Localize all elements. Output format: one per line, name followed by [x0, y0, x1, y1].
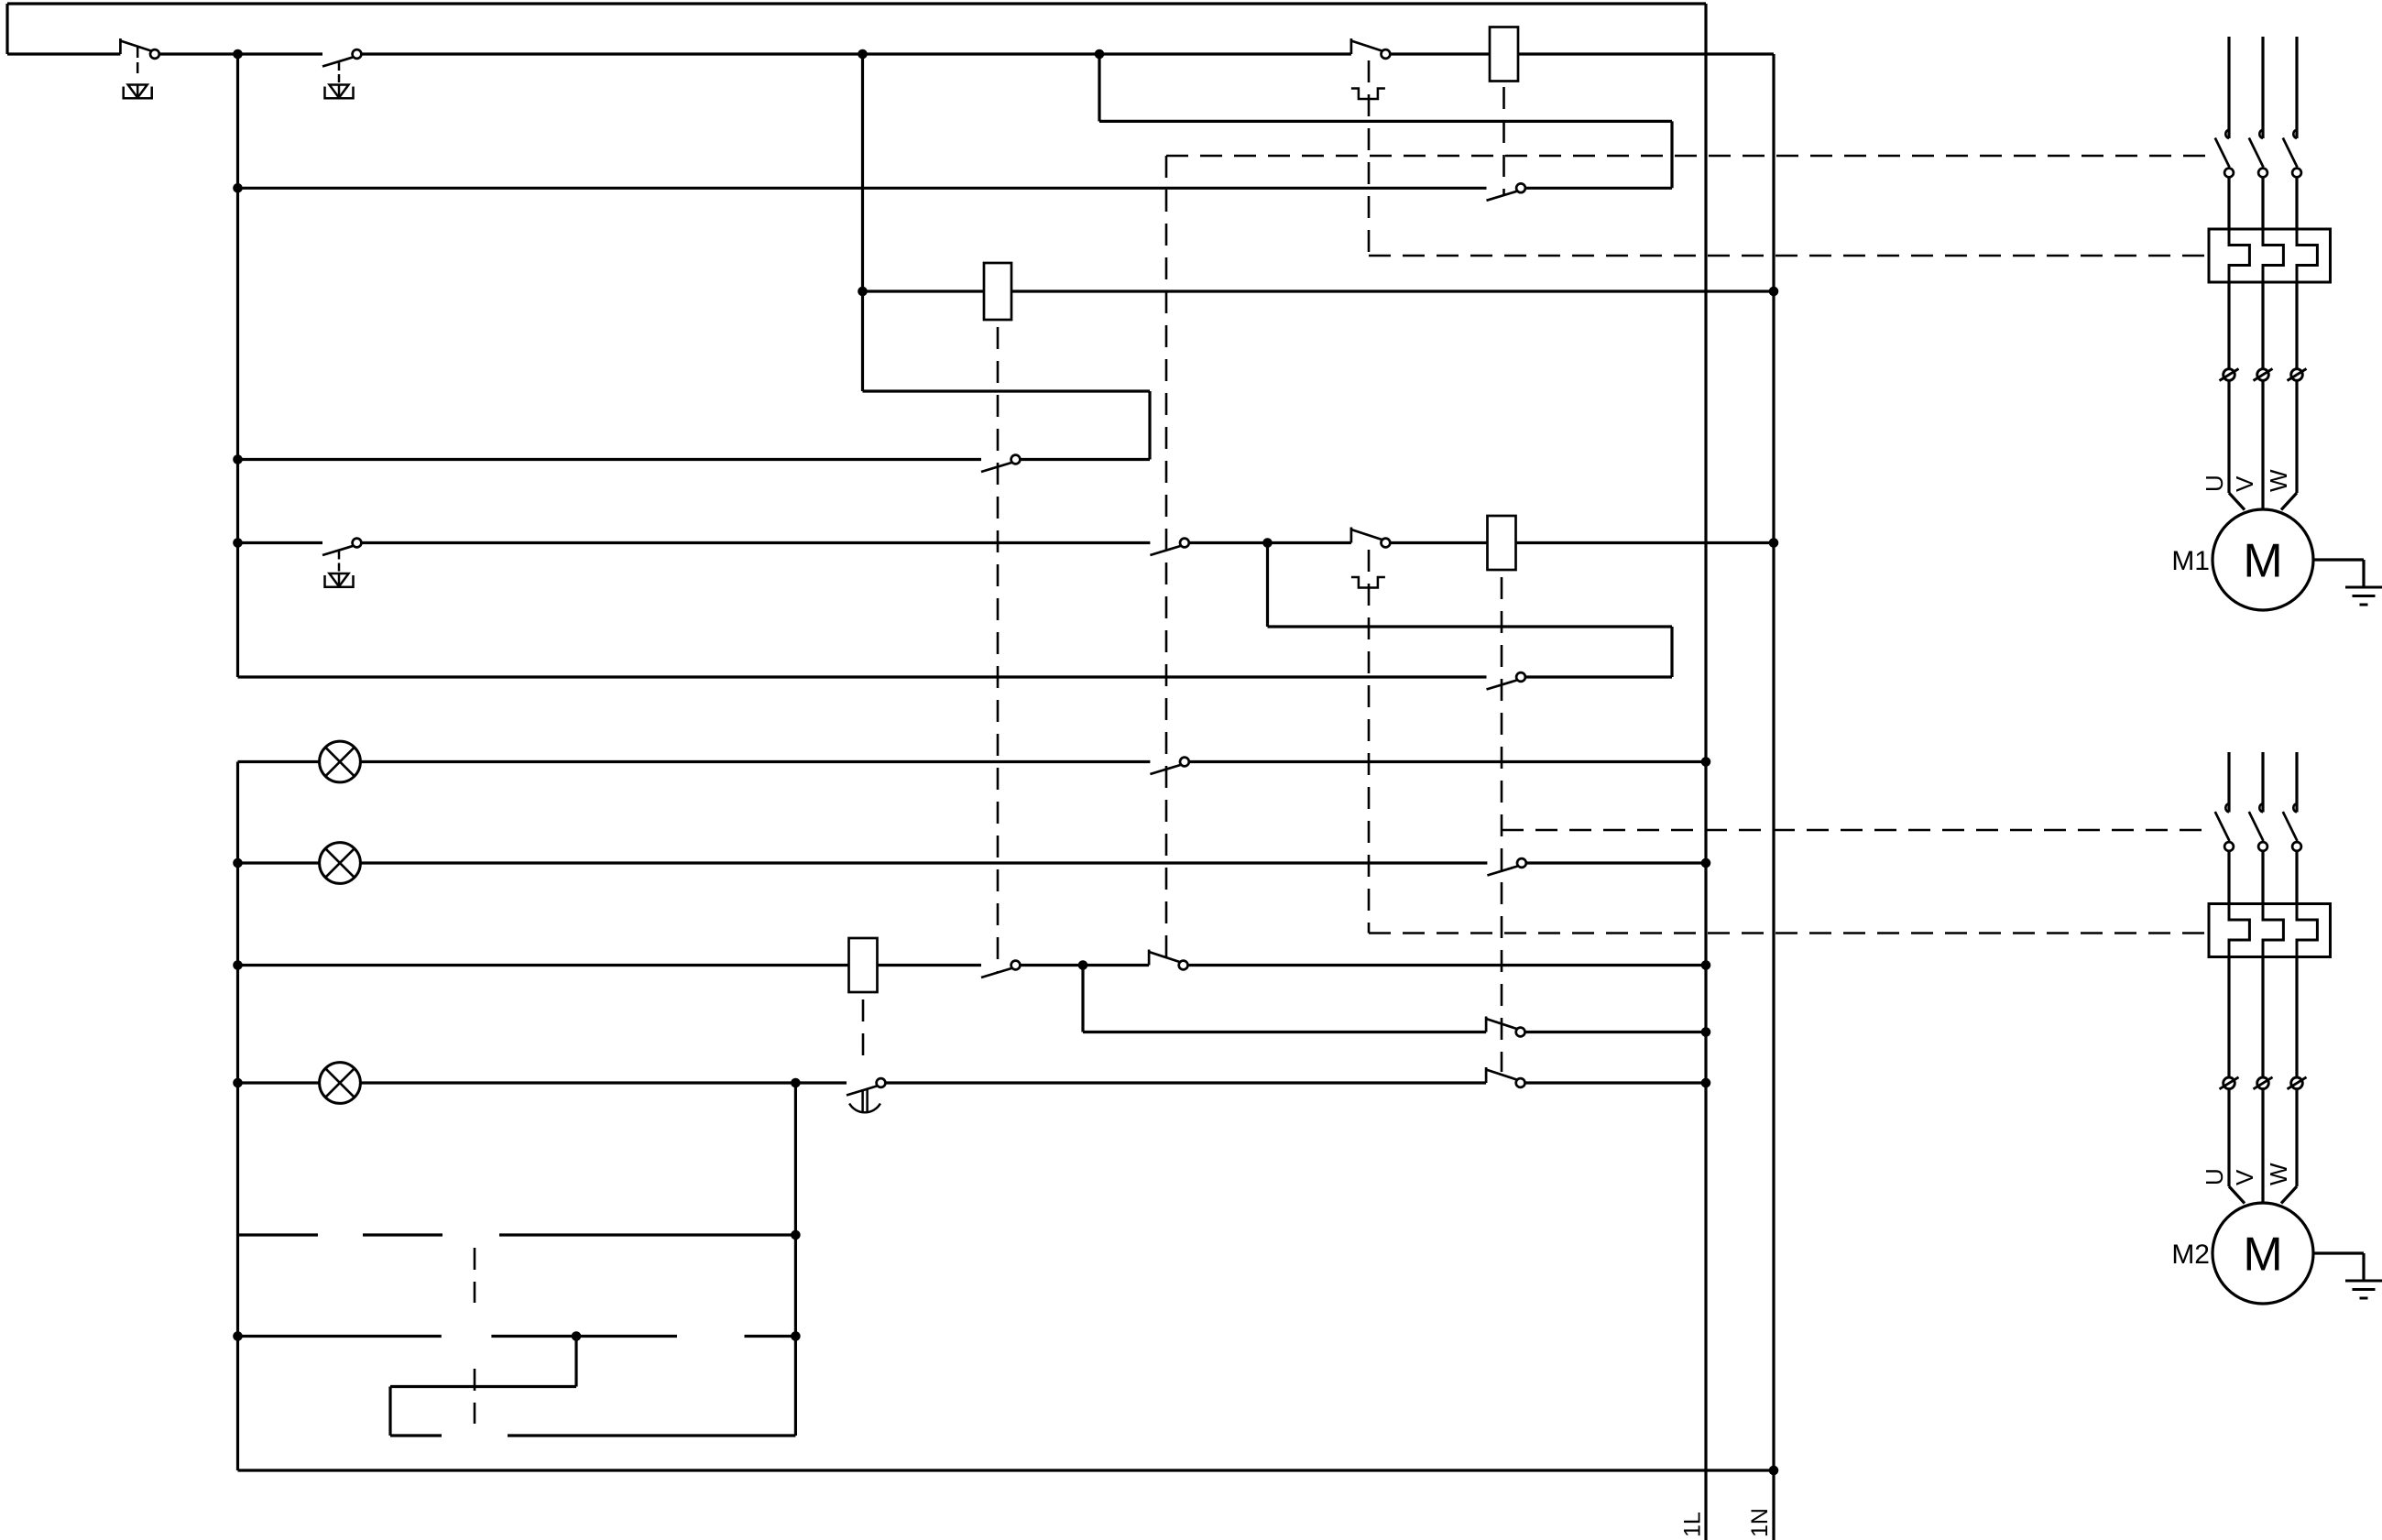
svg-text:M: M [2243, 535, 2282, 588]
svg-text:U: U [2201, 1168, 2228, 1185]
svg-text:M2: M2 [2171, 1240, 2210, 1270]
svg-text:W: W [2265, 469, 2292, 492]
svg-text:M: M [2243, 1229, 2282, 1282]
svg-text:M1: M1 [2171, 546, 2210, 576]
svg-text:V: V [2231, 475, 2258, 492]
svg-text:V: V [2231, 1169, 2258, 1185]
svg-text:1L: 1L [1680, 1512, 1706, 1537]
svg-text:U: U [2201, 475, 2228, 492]
svg-text:W: W [2265, 1163, 2292, 1185]
svg-text:1N: 1N [1747, 1508, 1773, 1537]
